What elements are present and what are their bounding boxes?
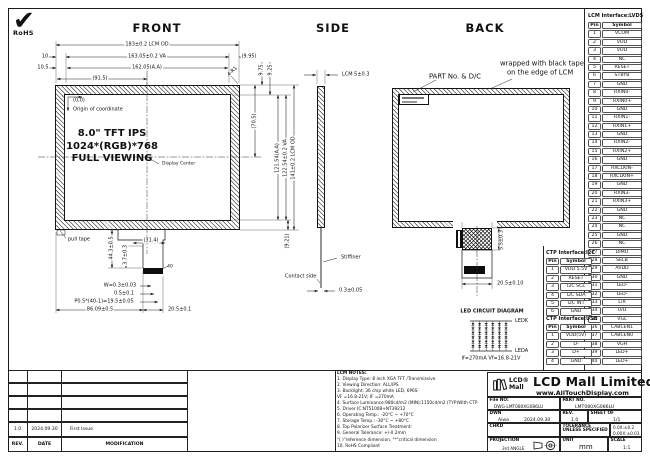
chkd-label: CHKD (490, 425, 504, 430)
revision-date-cell: DATE (28, 438, 62, 452)
dim-lcm-od-width: 183±0.2 LCM OD (124, 42, 169, 47)
pin-symbol-cell: RXCLKIN+ (602, 173, 642, 180)
pin-symbol-cell: LED+ (602, 358, 642, 365)
revision-row (8, 370, 188, 383)
pin-symbol-cell: VDD (602, 39, 642, 46)
pin-number-cell: 1 (546, 266, 559, 273)
pin-symbol-cell: VGL (602, 316, 642, 323)
dim-pin-edge: 0.5±0.1 (113, 291, 135, 296)
revision-modification-cell (62, 410, 188, 422)
pin-symbol-cell: STBYB (602, 72, 642, 79)
pin-symbol-cell: GND (602, 81, 642, 88)
revision-rev-cell (8, 371, 28, 383)
back-view-title: BACK (465, 21, 504, 35)
ctp-usb-table-title: CTP Interface:USB (546, 316, 598, 322)
dim-right-margin: (9.95) (240, 54, 257, 59)
part-number-sticker (399, 94, 429, 105)
pin-number-cell: 26 (588, 240, 601, 247)
contact-side-label: Contact side (284, 274, 317, 279)
dim-back-connector-width: 20.5±0.10 (496, 281, 524, 286)
pin-symbol-cell: SELB (602, 257, 642, 264)
tolerance-values-cell: 0.0X:±0.2 0.00X:±0.03 (610, 423, 642, 437)
pin-symbol-cell: RXIN0+ (602, 98, 642, 105)
led-spec: If=270mA Vf=16.8-21V (461, 356, 522, 361)
projection-value: 3rd ANGLE (502, 446, 525, 451)
lvds-pin-row: 39 LED+ (588, 349, 642, 356)
pin-header: Pin (546, 258, 559, 265)
pin-symbol-cell: RXIN2+ (602, 148, 642, 155)
pin-number-cell: 7 (588, 81, 601, 88)
dim-fpc-thickness: 0.3±0.05 (338, 288, 363, 293)
unit-label: UNIT (563, 439, 575, 444)
pin-symbol-cell: VDD (602, 47, 642, 54)
lvds-pin-row: 19 GND (588, 181, 642, 188)
dim-pin-width: W=0.3±0.03 (103, 283, 137, 288)
title-block-logo-cell: LCD® Mall LCD Mall Limited www.AllTouchD… (487, 372, 642, 397)
pin-number-cell: 25 (588, 232, 601, 239)
pin-number-cell: 8 (588, 89, 601, 96)
rev-cell: REV. 1.0 (560, 410, 588, 423)
unit-cell: UNIT mm (560, 437, 608, 452)
black-tape-note-1: wrapped with black tape (499, 60, 585, 67)
revision-modification-cell (62, 397, 188, 409)
rev-label: REV. (563, 412, 574, 417)
part-no-cell: PART NO. LMT080XG086LU (560, 397, 642, 410)
pin-symbol-cell: GND (602, 207, 642, 214)
sheet-label: SHEET OF (591, 412, 615, 417)
projection-cell: PROJECTION 3rd ANGLE (487, 437, 560, 452)
origin-label: Origin of coordinate (72, 107, 124, 112)
pin-symbol-cell: I2C SDA (560, 292, 592, 299)
pin-number-cell: 11 (588, 114, 601, 121)
lvds-pin-row: 12 RXIN1+ (588, 123, 642, 130)
pin-symbol-cell: GND (602, 181, 642, 188)
lvds-pin-row: 36 CABCEN1 (588, 324, 642, 331)
file-no-value: DWG-LMT080XG086LU (494, 405, 543, 410)
lvds-pin-row: 40 LED+ (588, 358, 642, 365)
pin-number-cell: 4 (546, 358, 559, 365)
lvds-pin-table: Pin Symbol 1 VCOM 2 VDD 3 VDD 4 NC (588, 22, 642, 365)
ctp-i2c-table-title: CTP Interface:I2C (546, 250, 595, 256)
dim-half-height: (70.5) (252, 112, 257, 129)
pin-symbol-cell: RXIN3- (602, 190, 642, 197)
part-no-dc-note: PART No. & D/C (428, 73, 482, 80)
pin-number-cell: 4 (588, 56, 601, 63)
pin-symbol-cell: I2C INT (560, 300, 592, 307)
back-ctp-fpc (456, 230, 462, 248)
file-no-label: File NO: (490, 399, 509, 404)
drawing-sheet: ✔ RoHS FRONT SIDE BACK (0, 0, 650, 460)
display-resolution: 1024*(RGB)*768 (66, 141, 158, 154)
lvds-pin-row: 4 NC (588, 56, 642, 63)
origin-coord: (0,0) (72, 98, 86, 103)
pin-number-cell: 5 (588, 64, 601, 71)
pin-number-cell: 4 (546, 292, 559, 299)
pin-symbol-cell: D+ (560, 349, 592, 356)
pin-number-cell: 1 (546, 332, 559, 339)
lvds-pin-row: 33 L/R (588, 299, 642, 306)
symbol-header: Symbol (560, 324, 592, 331)
third-angle-projection-icon (532, 440, 558, 451)
lvds-pin-row: 6 STBYB (588, 72, 642, 79)
display-size: 8.0" TFT IPS (66, 128, 158, 141)
lvds-pin-row: 26 NC (588, 240, 642, 247)
dim-left-margin-2: 10.5 (36, 65, 49, 70)
back-connector (464, 266, 485, 274)
dwn-date: 2024.09.30 (524, 418, 550, 423)
dim-fpc-neck: 3.7±0.3 (123, 244, 128, 266)
pin-number-cell: 5 (546, 300, 559, 307)
display-center-label: Display Center (161, 163, 196, 168)
lvds-pin-row: 37 CABCEN0 (588, 332, 642, 339)
pin-number-cell: 6 (588, 72, 601, 79)
pin-symbol-cell: GND (602, 156, 642, 163)
pin-symbol-cell: AVDD (602, 265, 642, 272)
file-no-cell: File NO: DWG-LMT080XG086LU (487, 397, 560, 410)
revision-rev-cell (8, 384, 28, 396)
pin-symbol-cell: NC (602, 56, 642, 63)
pin-symbol-cell: D- (560, 341, 592, 348)
pin-number-cell: 2 (546, 275, 559, 282)
lvds-pin-row: 23 NC (588, 215, 642, 222)
side-lcm-outline (317, 86, 325, 228)
pin-number-cell: 3 (546, 349, 559, 356)
revision-row: REV. DATE MODIFICATION (8, 437, 188, 452)
lvds-pin-row: 18 RXCLKIN+ (588, 173, 642, 180)
sheet-value: 1/1 (613, 418, 620, 423)
company-name: LCD Mall Limited (533, 374, 650, 389)
ctp-i2c-header-row: Pin Symbol (546, 258, 592, 265)
lvds-pin-row: 13 GND (588, 131, 642, 138)
dim-pin-pitch: P0.5*(40-1)=19.5±0.05 (73, 299, 134, 304)
pin-symbol-cell: GND (602, 131, 642, 138)
dim-top-925: 9.25 (268, 63, 273, 76)
pin-number-cell: 3 (588, 47, 601, 54)
pin-number-cell: 17 (588, 165, 601, 172)
rev-value: 1.0 (571, 418, 578, 423)
lvds-pin-row: 20 RXIN3- (588, 190, 642, 197)
pin-40-label: 40 (166, 266, 174, 271)
pin-symbol-cell: LED- (602, 282, 642, 289)
logo-line-1: LCD® (509, 377, 529, 384)
symbol-header: Symbol (602, 22, 642, 29)
dim-fpc-width: (31.4) (142, 238, 159, 243)
ctp-usb-pin-row: 3 D+ (546, 349, 592, 356)
lvds-header-row: Pin Symbol (588, 22, 642, 29)
ctp-i2c-pin-row: 5 I2C INT (546, 300, 592, 307)
pin-number-cell: 9 (588, 98, 601, 105)
dim-fpc-position: 86.09±0.5 (86, 307, 114, 312)
revision-date-cell (28, 397, 62, 409)
revision-row (8, 409, 188, 422)
pin-number-cell: 23 (588, 215, 601, 222)
revision-date-cell (28, 410, 62, 422)
pin-symbol-cell: RXIN0- (602, 89, 642, 96)
pin-symbol-cell: GND (560, 308, 592, 315)
tolerance-label-cell: TOLERANCE UNLESS SPECIFIED (560, 423, 610, 437)
front-view-title: FRONT (133, 21, 182, 35)
lvds-pin-row: 7 GND (588, 81, 642, 88)
pin-number-cell: 24 (588, 223, 601, 230)
ctp-i2c-table: Pin Symbol 1 VDD 5.5V 2 RESET 3 I2C SCL … (546, 258, 592, 316)
lvds-pin-row: 17 RXCLKIN- (588, 165, 642, 172)
pin-symbol-cell: NC (602, 215, 642, 222)
pin-symbol-cell: VCOM (602, 30, 642, 37)
pin-number-cell: 19 (588, 181, 601, 188)
pin-symbol-cell: L/R (602, 299, 642, 306)
pin-number-cell: 13 (588, 131, 601, 138)
pin-symbol-cell: VDD(5V) (560, 332, 592, 339)
pin-number-cell: 21 (588, 198, 601, 205)
tolerance-value-1: 0.0X:±0.2 (613, 425, 634, 430)
revision-rev-cell (8, 397, 28, 409)
lvds-pin-row: 15 RXIN2+ (588, 148, 642, 155)
pin-number-cell: 10 (588, 106, 601, 113)
dim-connector-width: 20.5±0.1 (167, 307, 192, 312)
ctp-i2c-pin-row: 3 I2C SCL (546, 283, 592, 290)
lvds-pin-row: 30 GND (588, 274, 642, 281)
lvds-pin-row: 2 VDD (588, 39, 642, 46)
dim-top-975: 9.75 (259, 63, 264, 76)
revision-date-cell (28, 384, 62, 396)
logo-line-2: Mall (509, 384, 529, 391)
ctp-i2c-pin-row: 1 VDD 5.5V (546, 266, 592, 273)
pin-symbol-cell: RESET (560, 275, 592, 282)
dim-aa-width: 162.05(A.A) (131, 65, 163, 70)
sheet-cell: SHEET OF 1/1 (588, 410, 642, 423)
pin-symbol-cell: RXIN1- (602, 114, 642, 121)
pin-symbol-cell: NC (602, 223, 642, 230)
revision-modification-cell: MODIFICATION (62, 438, 188, 452)
pin-number-cell: 15 (588, 148, 601, 155)
ledk-label: LEDK (515, 318, 528, 324)
revision-row (8, 383, 188, 396)
pin-symbol-cell: U/D (602, 307, 642, 314)
back-fpc-fold (462, 228, 492, 250)
display-spec-text: 8.0" TFT IPS 1024*(RGB)*768 FULL VIEWING (66, 128, 158, 166)
lvds-pin-row: 31 LED- (588, 282, 642, 289)
pin-symbol-cell: DIMO (602, 249, 642, 256)
revision-date-cell (28, 371, 62, 383)
ctp-i2c-pin-row: 2 RESET (546, 275, 592, 282)
lvds-pin-row: 16 GND (588, 156, 642, 163)
pin-symbol-cell: LED- (602, 291, 642, 298)
ctp-usb-header-row: Pin Symbol (546, 324, 592, 331)
lvds-pin-row: 10 GND (588, 106, 642, 113)
revision-rev-cell (8, 410, 28, 422)
ctp-table-divider (543, 246, 544, 370)
led-diagram-title: LED CIRCUIT DIAGRAM (459, 309, 524, 314)
back-lcm-outline (392, 88, 570, 228)
dim-lcm-od-height: 141±0.2 LCM OD (291, 135, 296, 180)
scale-cell: SCALE 1:1 (608, 437, 642, 452)
pin-number-cell: 18 (588, 173, 601, 180)
lvds-table-title: LCM Interface:LVDS (588, 13, 643, 19)
pin-number-cell: 12 (588, 123, 601, 130)
projection-label: PROJECTION (490, 439, 520, 444)
pin-symbol-cell: RXIN2- (602, 139, 642, 146)
pin-symbol-cell: RXCLKIN- (602, 165, 642, 172)
notes-left-divider (335, 370, 336, 452)
lcm-notes: LCM NOTES: 1. Display Type: 8 inch XGA T… (337, 371, 486, 450)
unit-value: mm (579, 443, 593, 451)
pin-number-cell: 2 (546, 341, 559, 348)
lvds-pin-row: 9 RXIN0+ (588, 98, 642, 105)
pin-number-cell: 6 (546, 308, 559, 315)
pin-number-cell: 2 (588, 39, 601, 46)
lvds-pin-row: 28 SELB (588, 257, 642, 264)
pin-number-cell: 22 (588, 207, 601, 214)
dim-aa-height: 121.54(A.A) (275, 142, 280, 174)
pin-symbol-cell: GND (602, 232, 642, 239)
lvds-pin-row: 34 U/D (588, 307, 642, 314)
rohs-logo: ✔ RoHS (13, 8, 35, 37)
revision-rev-cell: REV. (8, 438, 28, 452)
lvds-pin-row: 21 RXIN3+ (588, 198, 642, 205)
lvds-pin-row: 1 VCOM (588, 30, 642, 37)
lvds-pin-row: 25 GND (588, 232, 642, 239)
scale-label: SCALE (611, 439, 626, 444)
pin-symbol-cell: I2C SCL (560, 283, 592, 290)
back-fpc-opening (453, 221, 497, 228)
pin-symbol-cell: GND (602, 274, 642, 281)
pull-tape-label: pull tape (67, 237, 91, 242)
company-website: www.AllTouchDisplay.com (536, 389, 629, 397)
part-no-label: PART NO. (563, 399, 585, 404)
part-no-value: LMT080XG086LU (575, 405, 614, 410)
dim-back-fpc-height: 5.5±0.3 (499, 229, 504, 251)
tolerance-label: TOLERANCE UNLESS SPECIFIED (563, 425, 609, 435)
revision-table: 1.0 2024.09.30 First Issue REV. DATE MOD… (8, 370, 188, 452)
dim-bottom-margin: (9.21) (285, 232, 290, 249)
rohs-label: RoHS (13, 29, 35, 37)
pin-symbol-cell: CABCEN1 (602, 324, 642, 331)
lvds-pin-row: 5 RESET (588, 64, 642, 71)
chkd-cell: CHKD (487, 423, 560, 437)
back-inner-area (398, 94, 564, 222)
stiffener-label: Stiffiner (340, 255, 362, 260)
dwn-cell: DWN Aiwa 2024.09.30 (487, 410, 560, 423)
tolerance-value-2: 0.00X:±0.03 (613, 431, 639, 436)
scale-value: 1:1 (623, 446, 630, 451)
pin-symbol-cell: RESET (602, 64, 642, 71)
pin-number-cell: 16 (588, 156, 601, 163)
ctp-i2c-pin-row: 4 I2C SDA (546, 292, 592, 299)
logo-wordmark: LCD® Mall (509, 377, 529, 391)
ctp-usb-table: Pin Symbol 1 VDD(5V) 2 D- 3 D+ 4 GND (546, 324, 592, 365)
lcd-mall-logo-icon (492, 377, 507, 393)
symbol-header: Symbol (560, 258, 592, 265)
lvds-pin-row: 29 AVDD (588, 265, 642, 272)
pin-number-cell: 3 (546, 283, 559, 290)
pin-header: Pin (588, 22, 601, 29)
lvds-pin-row: 3 VDD (588, 47, 642, 54)
pin-symbol-cell: CABCEN0 (602, 332, 642, 339)
ctp-usb-pin-row: 2 D- (546, 341, 592, 348)
display-viewing: FULL VIEWING (66, 153, 158, 166)
revision-row: 1.0 2024.09.30 First Issue (8, 422, 188, 437)
pin-symbol-cell: VDD 5.5V (560, 266, 592, 273)
ctp-i2c-pin-row: 6 GND (546, 308, 592, 315)
revision-row (8, 396, 188, 409)
lvds-pin-row: 27 DIMO (588, 249, 642, 256)
lvds-pin-row: 32 LED- (588, 291, 642, 298)
pin-symbol-cell: RXIN1+ (602, 123, 642, 130)
dwn-name: Aiwa (498, 418, 509, 423)
lvds-pin-row: 11 RXIN1- (588, 114, 642, 121)
pin-symbol-cell: VGH (602, 341, 642, 348)
pin-symbol-cell: NC (602, 240, 642, 247)
leda-label: LEDA (515, 348, 528, 354)
lvds-pin-row: 24 NC (588, 223, 642, 230)
pin-symbol-cell: RXIN3+ (602, 198, 642, 205)
ctp-usb-pin-row: 4 GND (546, 358, 592, 365)
black-tape-note-2: on the edge of LCM (506, 69, 574, 76)
pin-number-cell: 1 (588, 30, 601, 37)
side-view-title: SIDE (316, 21, 350, 35)
dim-fpc-length: 44.3±0.5 (109, 235, 114, 260)
dim-left-margin: 10 (41, 54, 49, 59)
revision-modification-cell (62, 371, 188, 383)
lvds-pin-row: 14 RXIN2- (588, 139, 642, 146)
dim-half-width: (91.5) (91, 76, 108, 81)
pin-number-cell: 20 (588, 190, 601, 197)
front-connector (143, 268, 163, 274)
pin-number-cell: 14 (588, 139, 601, 146)
dim-va-width: 163.05±0.2 VA (127, 54, 167, 59)
dwn-label: DWN (490, 412, 502, 417)
dim-lcm-thickness: LCM 5±0.3 (341, 72, 371, 77)
note-line: 10. RoHS Compliant (337, 444, 486, 450)
pin-symbol-cell: GND (560, 358, 592, 365)
ctp-usb-pin-row: 1 VDD(5V) (546, 332, 592, 339)
revision-modification-cell (62, 384, 188, 396)
revision-modification-cell: First Issue (62, 423, 188, 437)
revision-date-cell: 2024.09.30 (28, 423, 62, 437)
pin-symbol-cell: GND (602, 106, 642, 113)
pin-header: Pin (546, 324, 559, 331)
revision-rev-cell: 1.0 (8, 423, 28, 437)
lvds-pin-row: 38 VGH (588, 341, 642, 348)
lvds-pin-row: 8 RXIN0- (588, 89, 642, 96)
dim-va-height: 122.54±0.2 VA (283, 138, 288, 178)
lvds-pin-row: 22 GND (588, 207, 642, 214)
pin-symbol-cell: LED+ (602, 349, 642, 356)
